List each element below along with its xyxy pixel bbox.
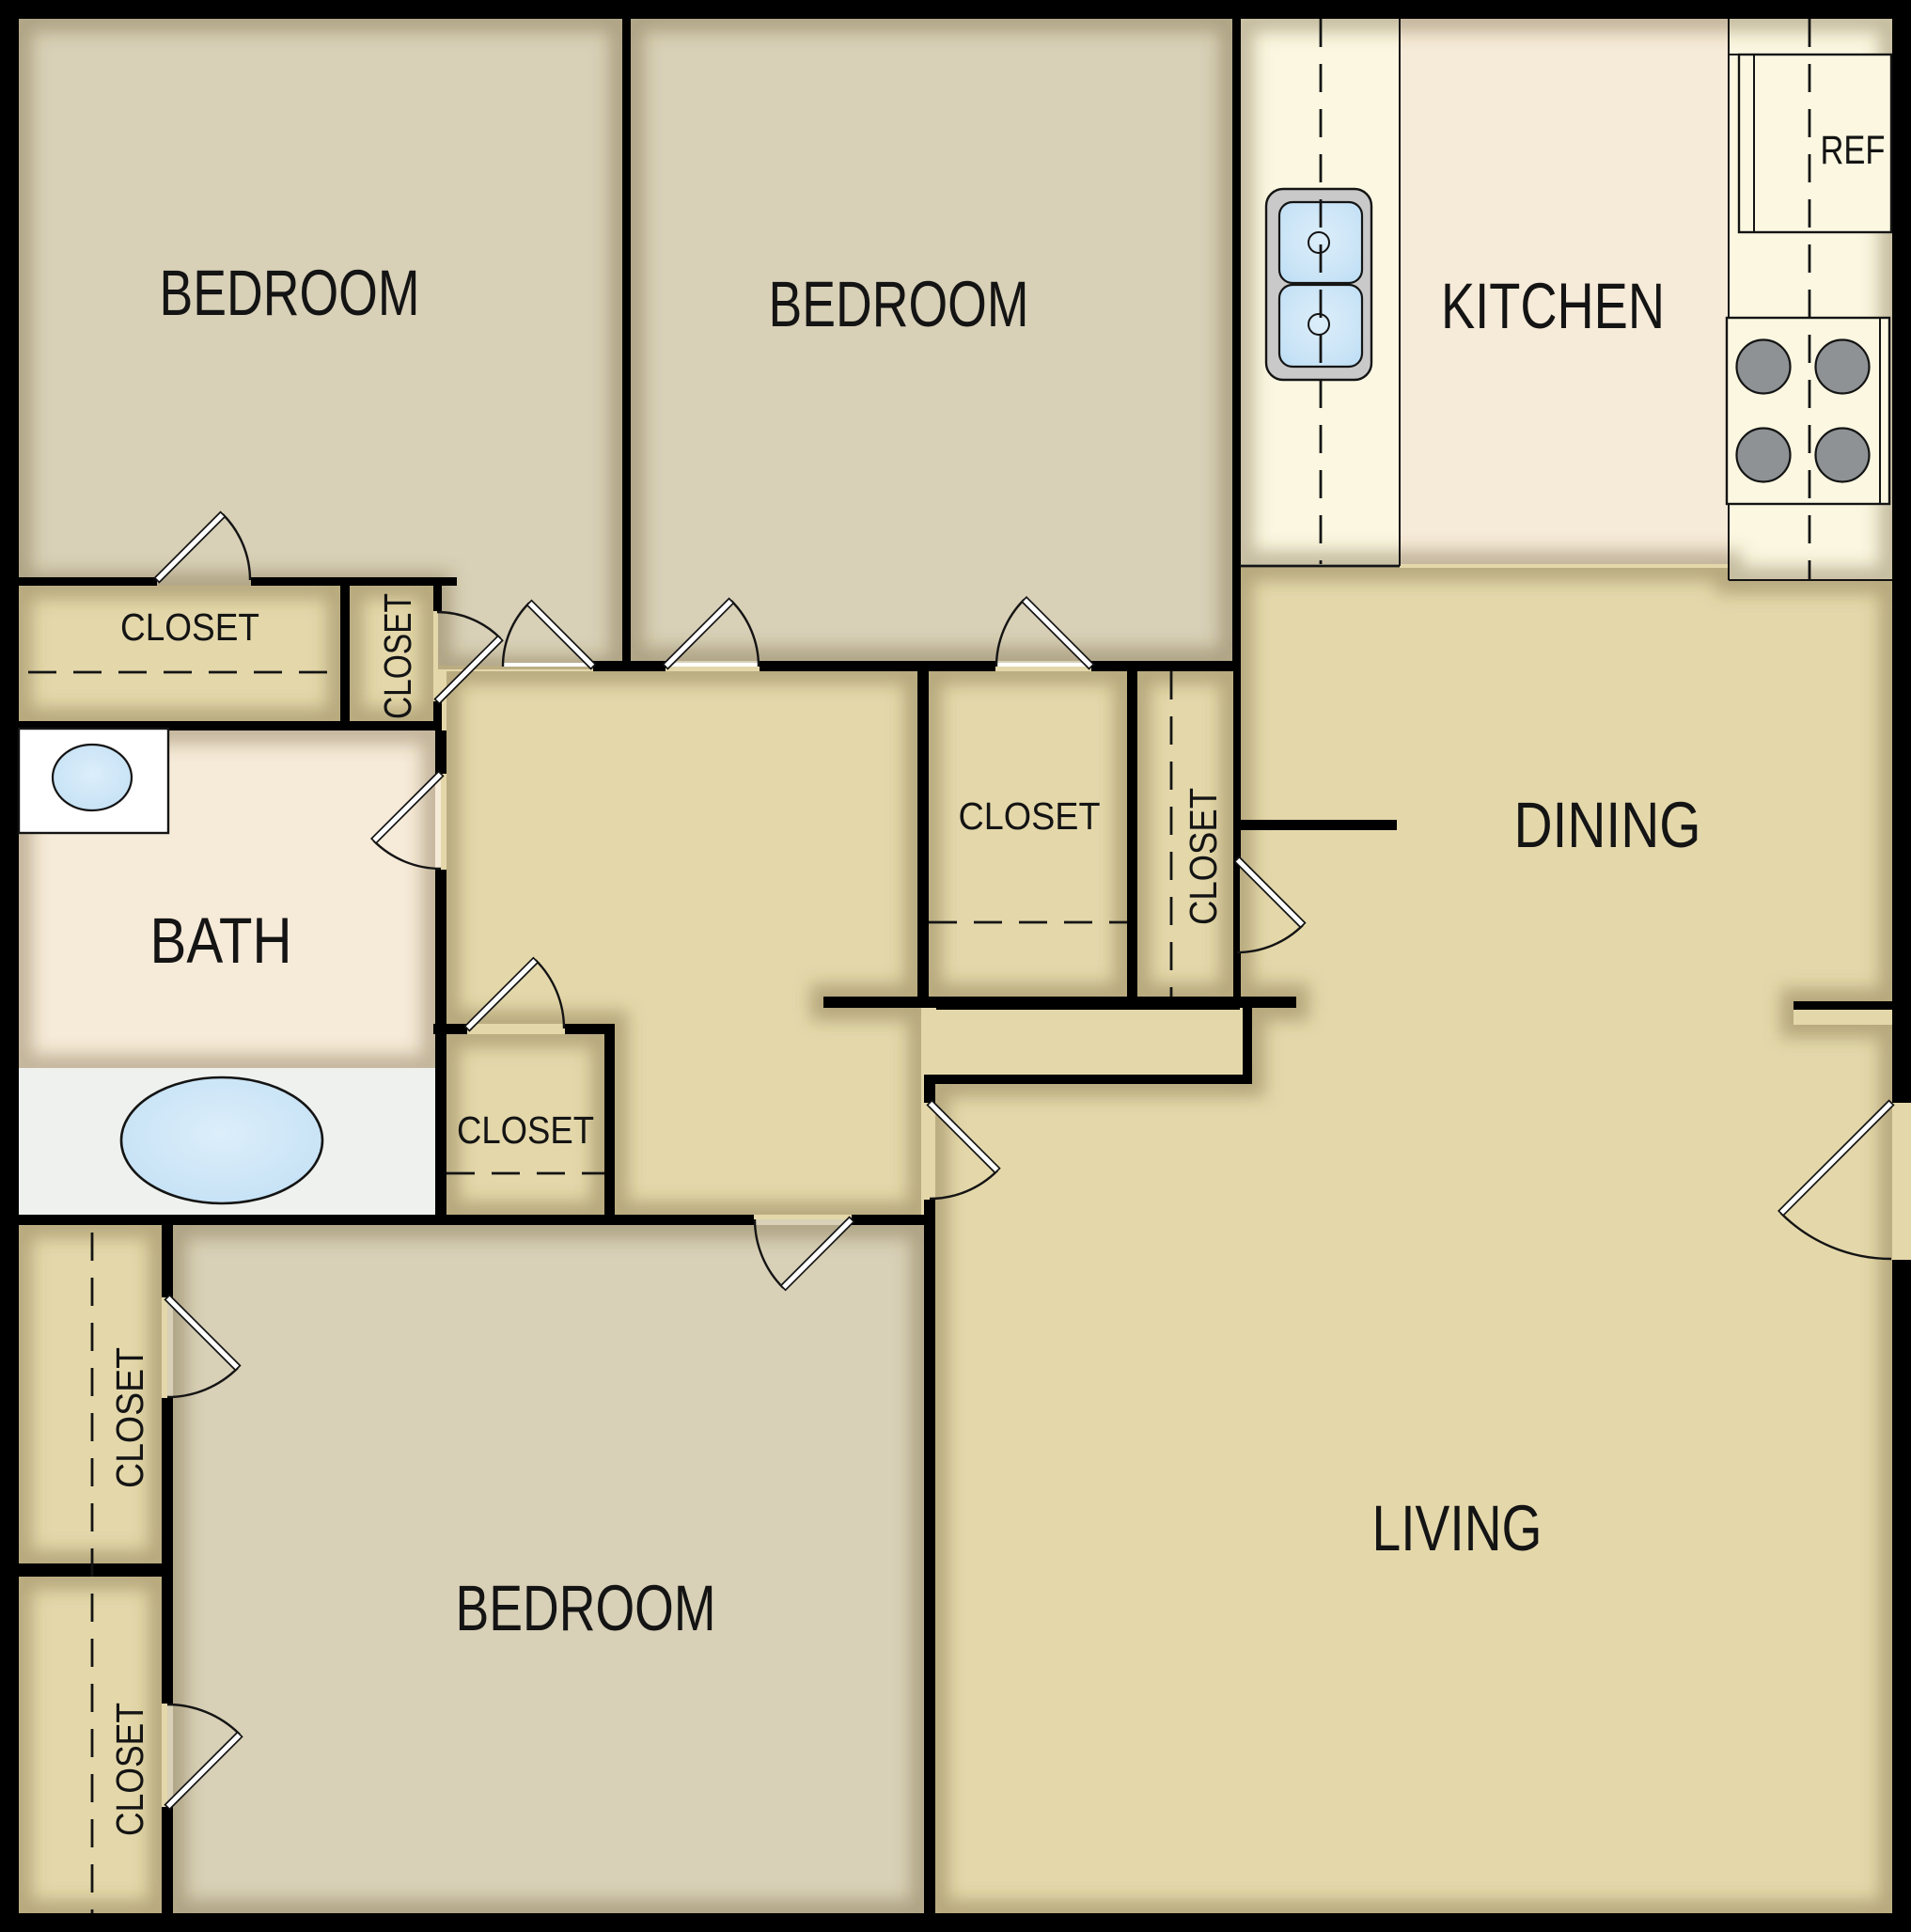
svg-text:CLOSET: CLOSET [108,1703,151,1836]
svg-text:BATH: BATH [150,904,292,977]
svg-text:CLOSET: CLOSET [376,593,419,719]
svg-text:CLOSET: CLOSET [1182,788,1225,925]
svg-text:LIVING: LIVING [1372,1492,1543,1564]
svg-text:REF: REF [1821,128,1886,173]
svg-text:BEDROOM: BEDROOM [456,1572,716,1644]
svg-text:CLOSET: CLOSET [457,1108,594,1152]
svg-text:CLOSET: CLOSET [108,1347,151,1488]
svg-text:CLOSET: CLOSET [959,794,1101,838]
svg-text:BEDROOM: BEDROOM [160,257,420,329]
svg-text:CLOSET: CLOSET [120,605,259,649]
svg-text:KITCHEN: KITCHEN [1441,270,1665,342]
svg-text:DINING: DINING [1514,789,1701,861]
svg-text:BEDROOM: BEDROOM [769,268,1029,340]
